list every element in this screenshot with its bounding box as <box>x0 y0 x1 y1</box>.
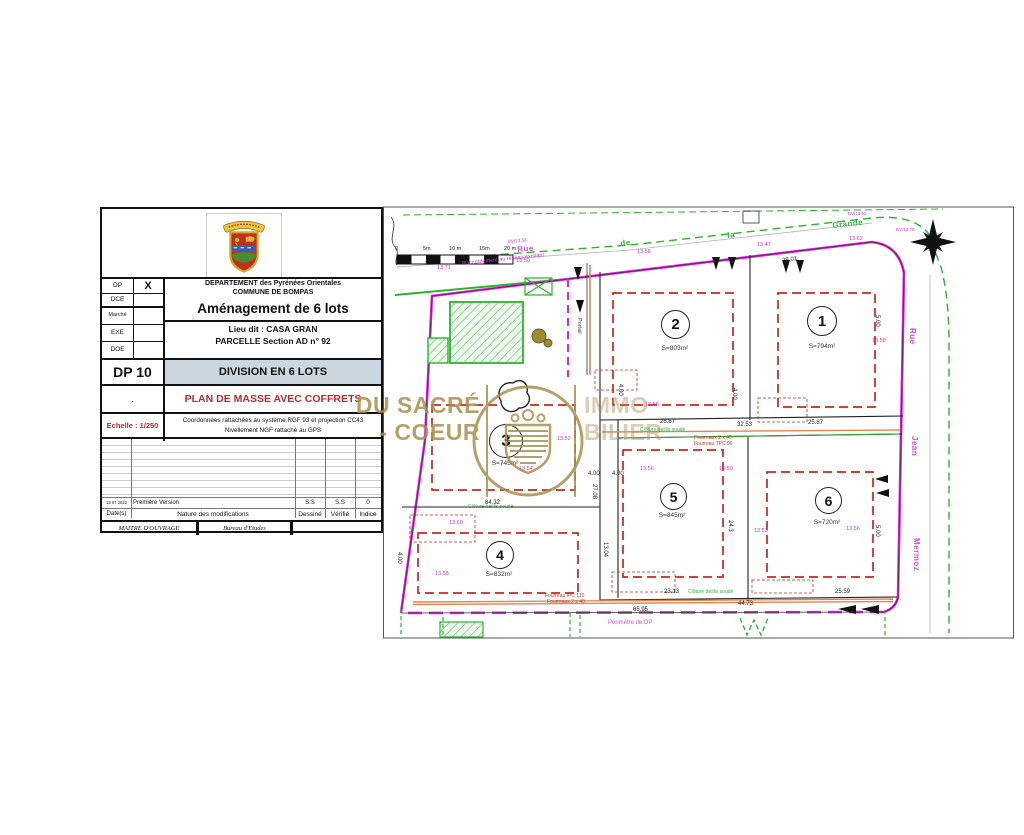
dot-cell: . <box>102 386 163 412</box>
fence-line-road <box>623 434 899 438</box>
bompas-coat-of-arms <box>215 217 273 275</box>
revision-index: 0 <box>355 498 381 508</box>
footer-bureau-etudes: Bureau d'Etudes <box>199 522 290 535</box>
zone-lot-6 <box>767 472 873 577</box>
compass-rose-icon <box>910 219 956 265</box>
revision-checked: S.S <box>325 498 355 508</box>
exe-row-label: EXE <box>102 324 133 341</box>
coords-line2: Nivellement NGF rattaché au GPS <box>165 425 381 437</box>
dce-row-label: DCE <box>102 293 133 306</box>
revision-drawn: S.S <box>295 498 325 508</box>
zone-lot-5 <box>623 450 723 577</box>
doc-title: DIVISION EN 6 LOTS <box>165 360 381 384</box>
project-title: Aménagement de 6 lots <box>165 299 381 319</box>
revision-grid <box>102 439 381 497</box>
commune-logo-box <box>206 213 282 278</box>
revision-description: Première Version <box>133 498 253 508</box>
scale-bar <box>397 255 513 264</box>
title-block: DP X DCE Marché EXE DOE DEPARTEMENT des … <box>100 207 383 533</box>
header-nature: Nature des modifications <box>131 509 295 520</box>
scale-label: Echelle : 1/250 <box>102 414 163 439</box>
watermark-line3: IMMO <box>584 394 649 417</box>
header-index: Indice <box>355 509 381 520</box>
header-date: Date(s) <box>102 509 131 520</box>
dp-row-value: X <box>133 279 163 293</box>
footer-maitre-ouvrage: MAITRE D'OUVRAGE <box>102 522 196 535</box>
header-checked: Vérifié <box>325 509 355 520</box>
header-drawn: Dessiné <box>295 509 325 520</box>
entrance-lines <box>587 263 590 375</box>
doe-row-label: DOE <box>102 341 133 359</box>
sacre-coeur-crest-icon <box>470 383 586 499</box>
watermark-line2: - COEUR <box>352 421 480 444</box>
marche-row-label: Marché <box>102 306 133 324</box>
zone-lot-2 <box>613 293 733 405</box>
plan-title: PLAN DE MASSE AVEC COFFRETS <box>165 386 381 412</box>
department-line2: COMMUNE DE BOMPAS <box>165 289 381 298</box>
revision-date: 13 07 2022 <box>102 498 131 508</box>
department-line1: DEPARTEMENT des Pyrénées Orientales <box>165 280 381 289</box>
dp-row-label: DP <box>102 279 133 293</box>
plan-document-page: DP X DCE Marché EXE DOE DEPARTEMENT des … <box>0 0 1024 835</box>
watermark-line1: DU SACRÉ <box>352 394 480 417</box>
lieu-dit: Lieu dit : CASA GRAN <box>165 324 381 336</box>
watermark-line4: BILIER <box>584 421 662 444</box>
doc-code: DP 10 <box>102 360 163 384</box>
zone-lot-1 <box>778 293 875 407</box>
existing-structures <box>391 211 759 412</box>
parcelle: PARCELLE Section AD n° 92 <box>165 336 381 348</box>
